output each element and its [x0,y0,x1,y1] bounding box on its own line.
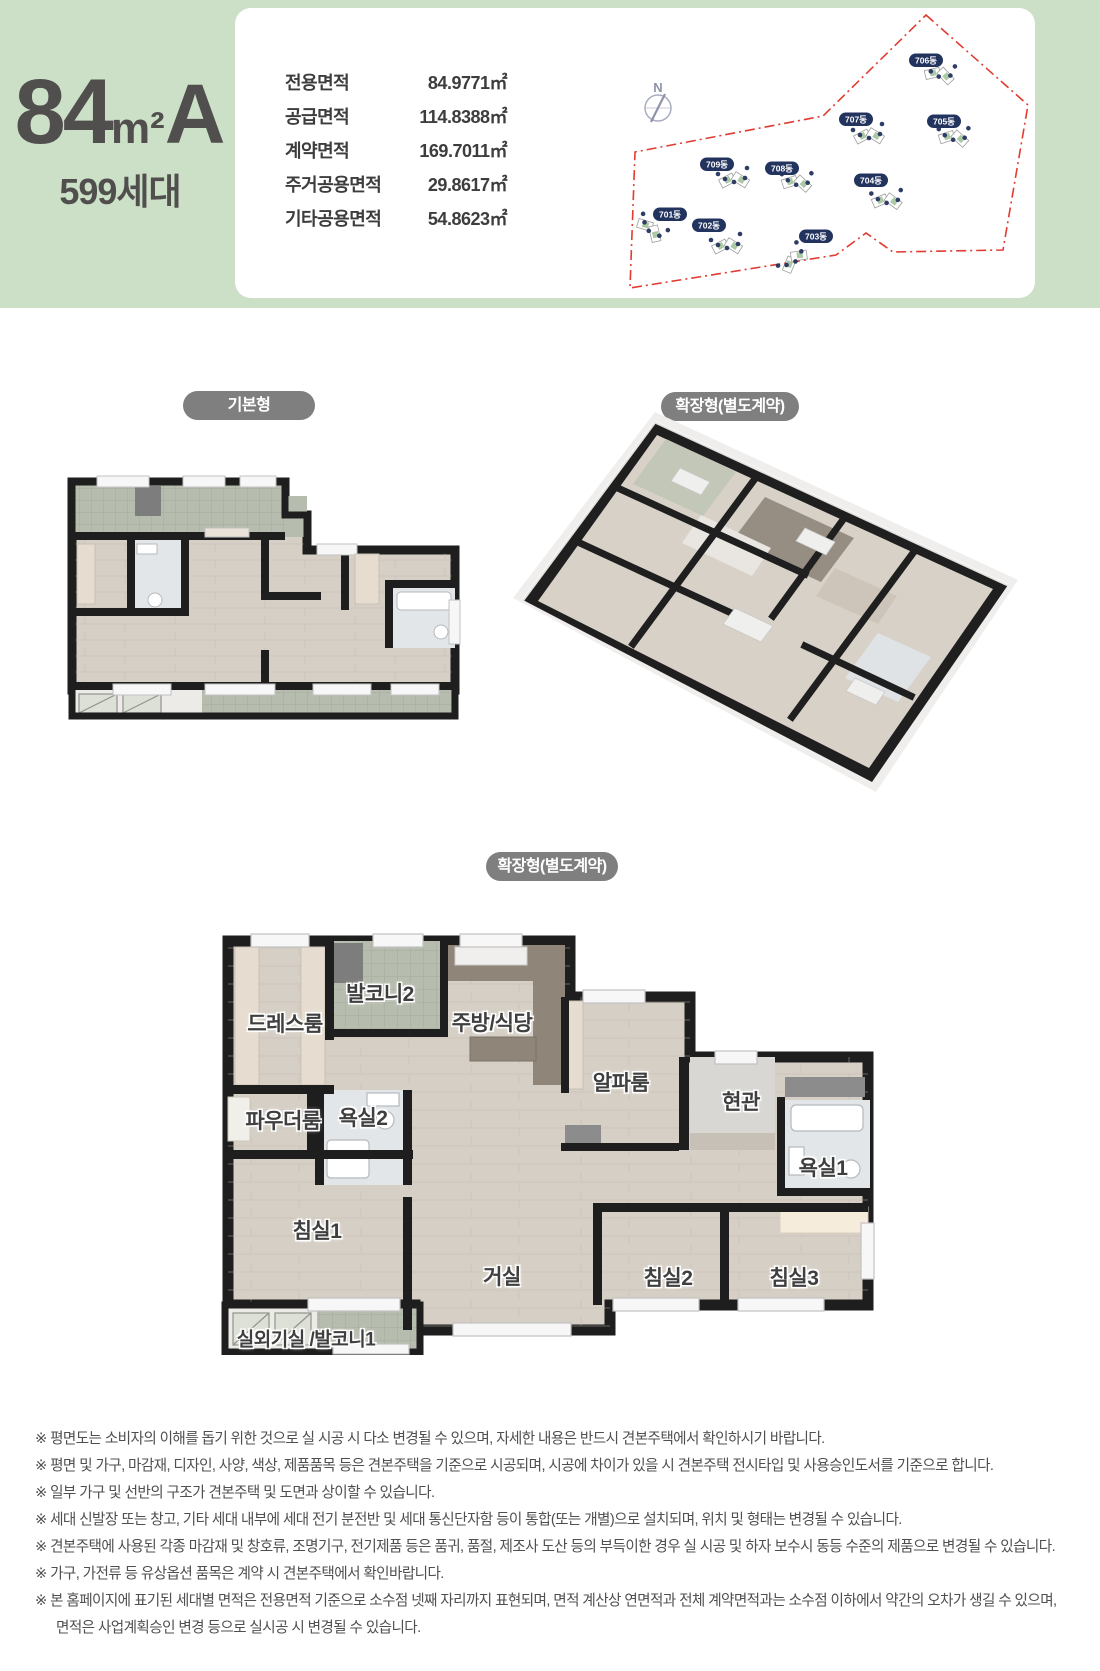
room-label-bedroom3: 침실3 [770,1262,819,1292]
svg-text:701동: 701동 [659,210,681,220]
room-label-powder-room: 파우더룸 [245,1105,320,1135]
room-label-dressroom: 드레스룸 [247,1008,322,1038]
room-label-ac-balcony1: 실외기실 /발코니1 [237,1325,376,1352]
building-badge-707: 707동 [839,113,873,127]
header-band: 84m²A 599세대 전용면적84.9771㎡ 공급면적114.8388㎡ 계… [0,0,1100,308]
basic-floor-plan [55,440,465,725]
building-badge-704: 704동 [854,174,888,188]
room-label-bedroom2: 침실2 [644,1262,693,1292]
disclaimer-list: ※ 평면도는 소비자의 이해를 돕기 위한 것으로 실 시공 시 다소 변경될 … [35,1426,1087,1642]
unit-type-name: 84m²A [0,66,240,158]
area-row: 기타공용면적54.8623㎡ [285,202,507,236]
disclaimer-line: ※ 견본주택에 사용된 각종 마감재 및 창호류, 조명기구, 전기제품 등은 … [35,1534,1087,1561]
disclaimer-line: ※ 본 홈페이지에 표기된 세대별 면적은 전용면적 기준으로 소수점 넷째 자… [35,1588,1087,1615]
area-row: 공급면적114.8388㎡ [285,100,507,134]
area-row: 계약면적169.7011㎡ [285,134,507,168]
room-label-living-room: 거실 [483,1261,521,1291]
compass-north-label: N [653,80,662,95]
building-footprints [632,56,972,278]
site-map: N 701동 702동 703동 704동 705동 [573,10,1033,296]
svg-text:702동: 702동 [698,221,720,231]
area-label: 전용면적 [285,66,349,100]
area-value: 169.7011㎡ [419,134,507,168]
unit-size: 84 [15,61,111,163]
building-badge-705: 705동 [927,115,961,129]
building-badge-702: 702동 [692,219,726,233]
building-badge-709: 709동 [700,158,734,172]
svg-text:706동: 706동 [915,56,937,66]
plan-caption-extended-2d: 확장형(별도계약) [486,852,618,881]
disclaimer-line: 면적은 사업계획승인 변경 등으로 실시공 시 변경될 수 있습니다. [35,1615,1087,1642]
plan-caption-basic: 기본형 [183,391,315,420]
extended-3d-plan [505,408,1025,793]
room-label-kitchen: 주방/식당 [452,1007,533,1037]
building-badges: 701동 702동 703동 704동 705동 706동 707동 708동 … [653,54,961,244]
room-label-bedroom1: 침실1 [293,1215,342,1245]
svg-text:705동: 705동 [933,117,955,127]
area-row: 주거공용면적29.8617㎡ [285,168,507,202]
unit-area-symbol: m² [111,104,165,153]
area-value: 54.8623㎡ [428,202,507,236]
area-label: 주거공용면적 [285,168,381,202]
area-label: 공급면적 [285,100,349,134]
disclaimer-line: ※ 평면 및 가구, 마감재, 디자인, 사양, 색상, 제품품목 등은 견본주… [35,1453,1087,1480]
svg-text:708동: 708동 [771,164,793,174]
building-badge-708: 708동 [765,162,799,176]
unit-variant: A [165,67,226,161]
room-label-bathroom1: 욕실1 [799,1152,848,1182]
room-label-balcony2: 발코니2 [346,978,414,1008]
room-label-entrance: 현관 [722,1086,760,1116]
area-label: 계약면적 [285,134,349,168]
room-label-bathroom2: 욕실2 [339,1102,388,1132]
disclaimer-line: ※ 세대 신발장 또는 창고, 기타 세대 내부에 세대 전기 분전반 및 세대… [35,1507,1087,1534]
area-value: 29.8617㎡ [428,168,507,202]
household-count: 599세대 [0,174,240,210]
building-badge-703: 703동 [799,230,833,244]
svg-text:709동: 709동 [706,160,728,170]
building-badge-701: 701동 [653,208,687,222]
area-table: 전용면적84.9771㎡ 공급면적114.8388㎡ 계약면적169.7011㎡… [285,66,507,236]
svg-text:703동: 703동 [805,232,827,242]
area-label: 기타공용면적 [285,202,381,236]
area-row: 전용면적84.9771㎡ [285,66,507,100]
disclaimer-line: ※ 가구, 가전류 등 유상옵션 품목은 계약 시 견본주택에서 확인바랍니다. [35,1561,1087,1588]
disclaimer-line: ※ 평면도는 소비자의 이해를 돕기 위한 것으로 실 시공 시 다소 변경될 … [35,1426,1087,1453]
disclaimer-line: ※ 일부 가구 및 선반의 구조가 견본주택 및 도면과 상이할 수 있습니다. [35,1480,1087,1507]
header-info-panel: 전용면적84.9771㎡ 공급면적114.8388㎡ 계약면적169.7011㎡… [235,8,1035,298]
site-boundary [630,15,1028,288]
room-label-alpha-room: 알파룸 [593,1067,649,1097]
area-value: 84.9771㎡ [428,66,507,100]
compass: N [644,80,672,122]
svg-text:704동: 704동 [860,176,882,186]
svg-text:707동: 707동 [845,115,867,125]
unit-type-title: 84m²A 599세대 [0,66,240,210]
area-value: 114.8388㎡ [419,100,507,134]
building-badge-706: 706동 [909,54,943,68]
